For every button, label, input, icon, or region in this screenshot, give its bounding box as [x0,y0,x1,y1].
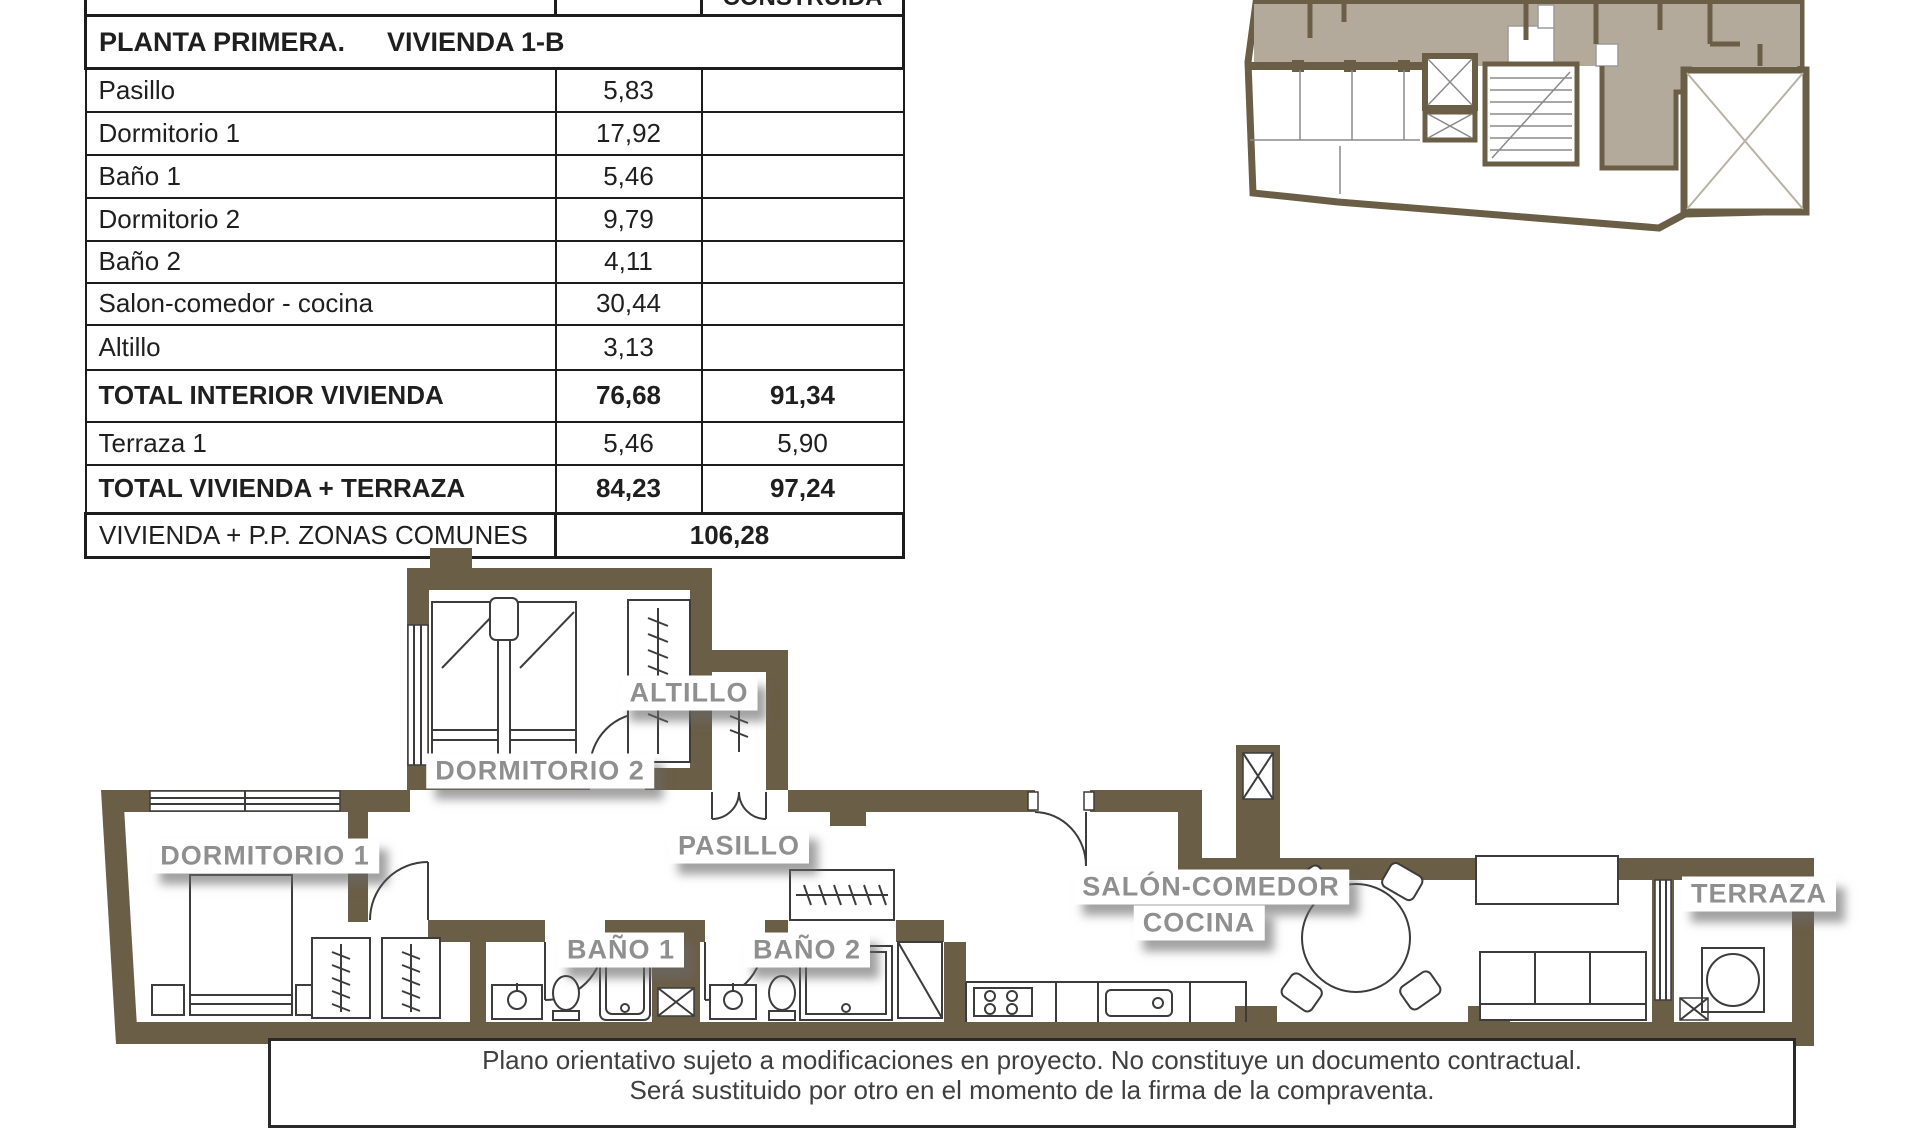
terraza-furniture [1702,948,1764,1012]
label-dormitorio1: DORMITORIO 1 [151,839,379,874]
label-bano2: BAÑO 2 [744,933,870,968]
kitchen-counter [966,982,1246,1022]
label-cocina: COCINA [1134,906,1265,941]
sofa [1480,952,1646,1020]
sideboard [1476,856,1618,904]
key-plan-stairs [1485,64,1577,164]
label-dormitorio2: DORMITORIO 2 [426,754,654,789]
floor-plan [101,548,1814,1046]
label-bano1: BAÑO 1 [558,933,684,968]
label-altillo: ALTILLO [621,676,758,711]
disclaimer-box: Plano orientativo sujeto a modificacione… [268,1038,1796,1128]
pasillo-wardrobe [790,870,894,920]
floor-plan-sheet: { "table": { "header": { "construida": "… [0,0,1920,1080]
disclaimer-line1: Plano orientativo sujeto a modificacione… [271,1045,1793,1075]
key-plan-lightwell [1684,70,1806,212]
label-terraza: TERRAZA [1682,877,1836,912]
plan-drawing [0,0,1920,1080]
label-salon-comedor: SALÓN-COMEDOR [1073,870,1349,905]
key-plan-elevator-shaft [1425,56,1475,140]
dormitorio1-furniture [152,875,440,1018]
key-plan [1248,3,1806,228]
label-pasillo: PASILLO [669,829,809,864]
